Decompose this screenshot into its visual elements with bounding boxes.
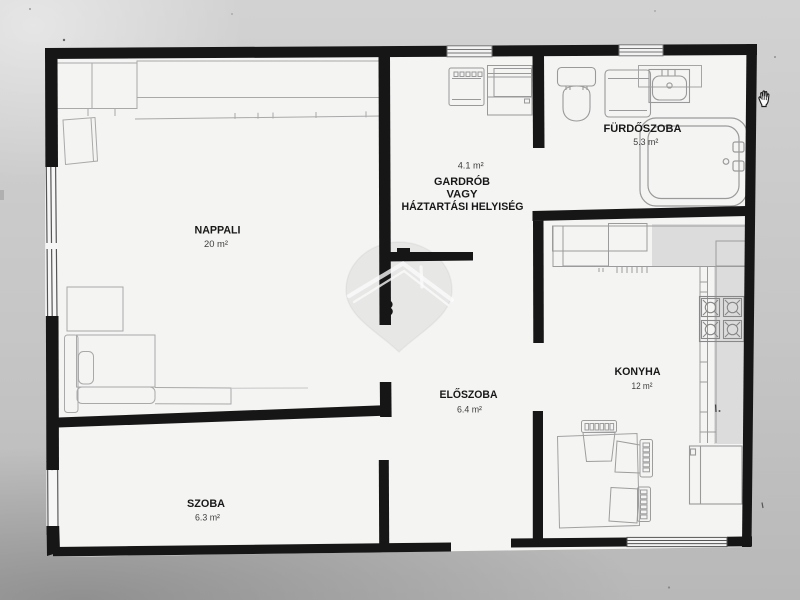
svg-text:ELŐSZOBA: ELŐSZOBA [440,388,498,401]
svg-text:SZOBA: SZOBA [187,498,225,510]
svg-text:6.3 m²: 6.3 m² [195,513,220,523]
svg-text:HÁZTARTÁSI HELYISÉG: HÁZTARTÁSI HELYISÉG [402,200,524,213]
svg-text:20 m²: 20 m² [204,239,228,249]
svg-text:NAPPALI: NAPPALI [195,225,241,237]
svg-text:12 m²: 12 m² [632,381,653,391]
svg-text:4.1 m²: 4.1 m² [458,161,484,171]
svg-text:FÜRDŐSZOBA: FÜRDŐSZOBA [604,122,682,135]
svg-text:KONYHA: KONYHA [615,366,661,378]
svg-text:GARDRÓB: GARDRÓB [434,175,490,188]
svg-text:5.3 m²: 5.3 m² [633,137,658,147]
svg-text:6.4 m²: 6.4 m² [457,405,482,415]
svg-text:VAGY: VAGY [447,189,478,201]
